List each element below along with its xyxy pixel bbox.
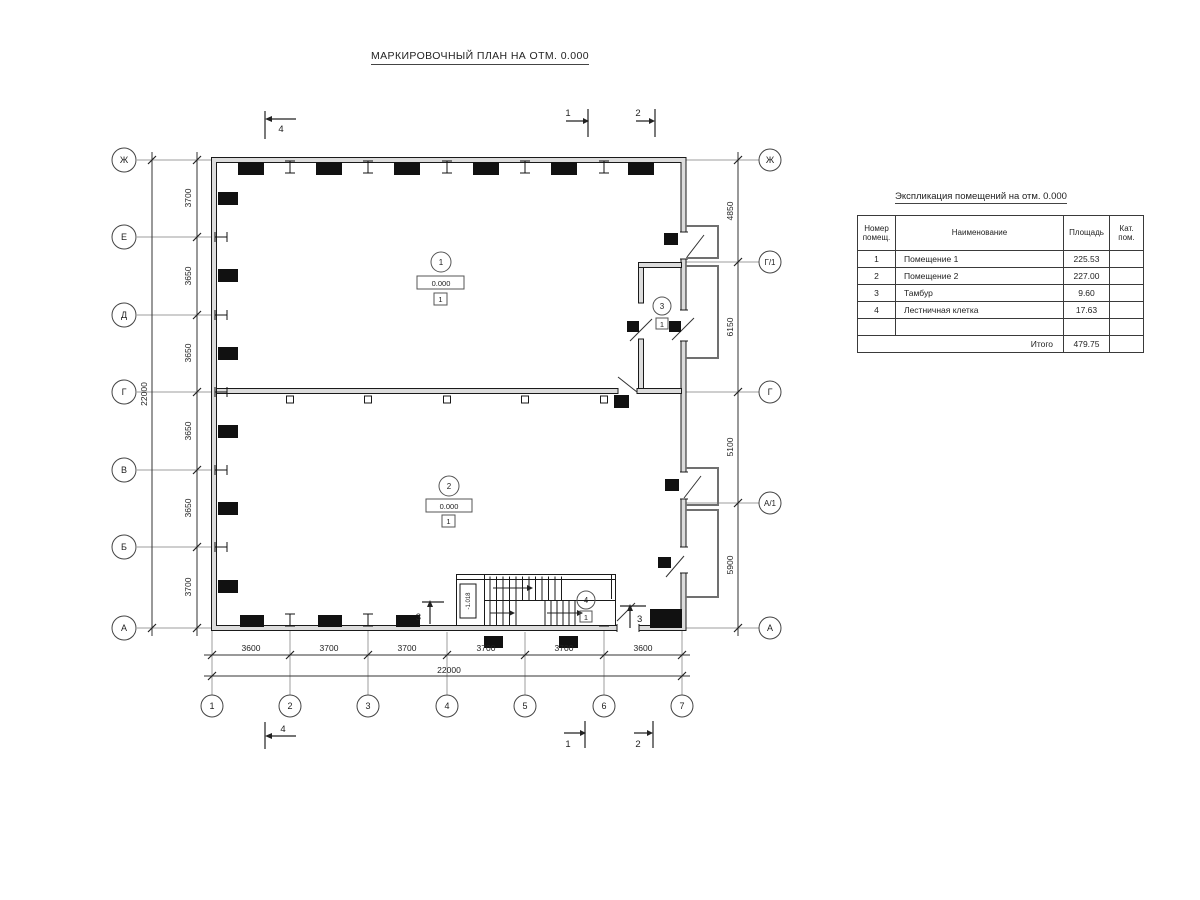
axis-label-right-2: Г [768,387,773,397]
dim-bottom-1: 3700 [320,643,339,653]
floor-plan-sheet: МАРКИРОВОЧНЫЙ ПЛАН НА ОТМ. 0.000 [0,0,1200,900]
schedule-row-empty [858,319,1144,336]
dim-bottom-0: 3600 [242,643,261,653]
schedule-cell-category [1110,319,1144,336]
schedule-row-3: 3 Тамбур 9.60 [858,285,1144,302]
schedule-cell-number: 3 [858,285,896,302]
dim-left-total: 22000 [139,382,149,406]
section-1-top-label: 1 [565,108,570,119]
room-2-floor-type: 1 [446,517,450,526]
schedule-row-4: 4 Лестничная клетка 17.63 [858,302,1144,319]
room-1-elevation: 0.000 [432,279,451,288]
room-3-number: 3 [660,302,665,311]
room-2-number: 2 [447,482,452,491]
room-1-number: 1 [439,258,444,267]
axis-label-left-5: Б [121,542,127,552]
axis-label-bottom-5: 6 [601,701,606,711]
dim-left-3: 3650 [183,421,193,440]
dim-left-4: 3650 [183,498,193,517]
dim-right-2: 5100 [725,437,735,456]
axis-label-bottom-6: 7 [679,701,684,711]
schedule-cell-name [896,319,1064,336]
axis-label-left-0: Ж [120,155,129,165]
axis-label-right-1: Г/1 [764,258,776,267]
section-3-right-label: 3 [637,614,642,625]
axis-label-left-4: В [121,465,127,475]
schedule-cell-area: 17.63 [1064,302,1110,319]
dim-bottom-3: 3700 [477,643,496,653]
axis-label-bottom-3: 4 [444,701,449,711]
schedule-cell-area: 227.00 [1064,268,1110,285]
schedule-cell-category [1110,302,1144,319]
room-4-floor-type: 1 [584,613,588,622]
schedule-cell-category [1110,268,1144,285]
dim-right-1: 6150 [725,317,735,336]
schedule-cell-category [1110,285,1144,302]
schedule-title: Экспликация помещений на отм. 0.000 [850,191,1112,204]
schedule-cell-number: 2 [858,268,896,285]
schedule-cell-number: 1 [858,251,896,268]
schedule-title-text: Экспликация помещений на отм. 0.000 [895,191,1067,204]
axis-label-bottom-0: 1 [209,701,214,711]
schedule-total-category [1110,336,1144,353]
schedule-header-number: Номер помещ. [858,216,896,251]
room-3-floor-type: 1 [660,320,664,329]
schedule-cell-number: 4 [858,302,896,319]
dim-left-2: 3650 [183,343,193,362]
floor-plan-drawing: -1.018 3700 3650 3650 3650 3650 3700 220… [0,0,1200,900]
dim-bottom-total: 22000 [437,665,461,675]
dim-right-3: 5900 [725,555,735,574]
middle-wall [217,389,619,394]
axis-label-bottom-4: 5 [522,701,527,711]
dim-bottom-2: 3700 [398,643,417,653]
section-4-bottom-label: 4 [280,724,285,735]
dim-left-0: 3700 [183,188,193,207]
axis-label-bottom-1: 2 [287,701,292,711]
axis-label-left-3: Г [122,387,127,397]
schedule-cell-name: Лестничная клетка [896,302,1064,319]
dim-bottom-4: 3700 [555,643,574,653]
schedule-total-row: Итого 479.75 [858,336,1144,353]
schedule-row-2: 2 Помещение 2 227.00 [858,268,1144,285]
schedule-cell-category [1110,251,1144,268]
middle-wall-right-segment [637,389,682,394]
schedule-header-row: Номер помещ. Наименование Площадь Кат. п… [858,216,1144,251]
schedule-cell-name: Помещение 2 [896,268,1064,285]
section-2-bottom-label: 2 [635,739,640,750]
tambour-top-wall [639,263,682,268]
section-4-top-label: 4 [278,124,283,135]
schedule-total-value: 479.75 [1064,336,1110,353]
section-3-left-label: 3 [416,612,421,623]
room-4-number: 4 [584,596,589,605]
schedule-total-label: Итого [858,336,1064,353]
dim-left-5: 3700 [183,577,193,596]
schedule-header-name: Наименование [896,216,1064,251]
building-walls [212,158,687,631]
schedule-row-1: 1 Помещение 1 225.53 [858,251,1144,268]
exterior-stoops [686,226,718,597]
schedule-header-category: Кат. пом. [1110,216,1144,251]
stair-elevation-label: -1.018 [466,592,472,610]
dim-right-0: 4850 [725,201,735,220]
schedule-cell-area: 9.60 [1064,285,1110,302]
axis-label-bottom-2: 3 [365,701,370,711]
room-2-elevation: 0.000 [440,502,459,511]
schedule-cell-name: Помещение 1 [896,251,1064,268]
room-1-floor-type: 1 [438,295,442,304]
section-2-top-label: 2 [635,108,640,119]
dim-left-1: 3650 [183,266,193,285]
schedule-cell-number [858,319,896,336]
tambour-left-wall-lower [639,339,644,389]
room-schedule-table: Номер помещ. Наименование Площадь Кат. п… [857,215,1144,353]
axis-label-right-0: Ж [766,155,775,165]
axis-label-left-2: Д [121,310,127,320]
axis-label-right-3: А/1 [764,499,777,508]
schedule-cell-name: Тамбур [896,285,1064,302]
section-1-bottom-label: 1 [565,739,570,750]
schedule-header-area: Площадь [1064,216,1110,251]
axis-label-right-4: А [767,623,773,633]
axis-label-left-1: Е [121,232,127,242]
tambour-left-wall-upper [639,268,644,304]
schedule-cell-area [1064,319,1110,336]
dim-bottom-5: 3600 [634,643,653,653]
schedule-cell-area: 225.53 [1064,251,1110,268]
axis-label-left-6: А [121,623,127,633]
